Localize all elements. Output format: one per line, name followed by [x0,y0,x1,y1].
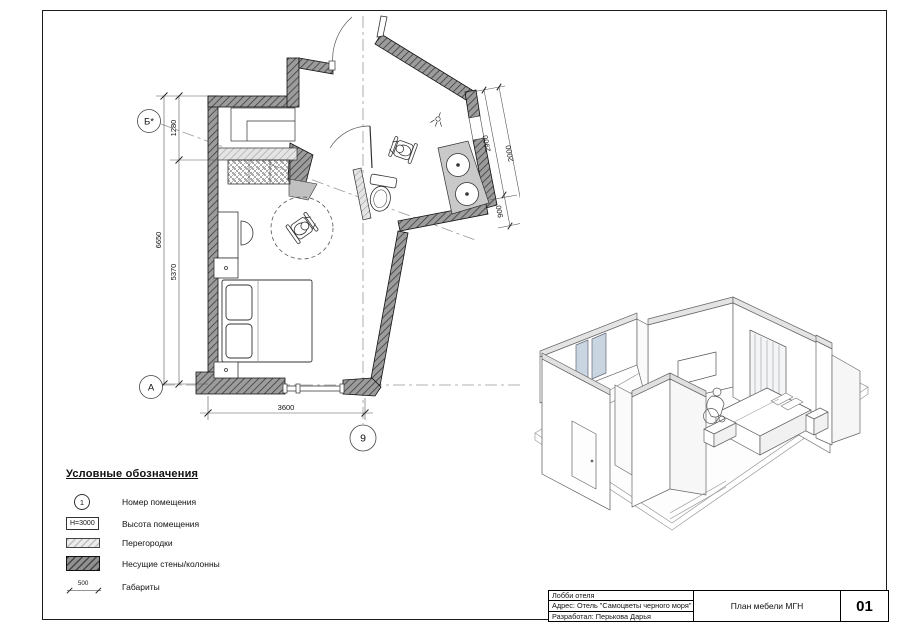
desk [218,212,238,258]
partition-a [632,379,670,507]
bed [222,280,312,362]
wall-niche-stub [287,58,299,107]
project-name: Лобби отеля [549,591,693,600]
grid-bubble-b: Б* [138,110,161,133]
svg-text:9: 9 [360,433,366,445]
svg-text:500: 500 [78,580,89,587]
niche-shelf [231,108,295,141]
legend-item-partitions: Перегородки [66,538,316,548]
partition-b [670,379,706,495]
legend-label: Перегородки [122,538,173,548]
partition-symbol [66,538,100,548]
svg-text:А: А [148,383,155,394]
sink-2 [456,183,479,206]
wardrobe [228,160,290,184]
wall-niche-top [208,96,297,107]
legend-item-room-number: 1 Номер помещения [66,494,316,510]
axonometric-view [520,275,880,540]
sink-1 [447,154,470,177]
partition-toilet [353,168,371,220]
chair [241,221,253,245]
wheelchair-symbol-bath [387,136,417,164]
wheelchair-symbol-room [285,211,319,244]
wall-bath-top [375,34,472,100]
shower-icon [430,110,446,128]
wall-room-right-slanted [370,231,408,386]
room-number-symbol: 1 [74,494,90,510]
wall-entry-left [299,58,333,74]
dim-900: 900 [494,204,505,218]
legend-label: Несущие стены/колонны [122,559,220,569]
bathroom-door [330,126,372,168]
sheet-number: 01 [841,591,888,621]
legend: Условные обозначения 1 Номер помещения H… [66,468,316,603]
wall-left [208,96,218,385]
dim-3600: 3600 [278,403,295,412]
partition-niche-bottom [218,148,297,160]
dim-5370: 5370 [169,264,178,281]
sheet-title: План мебели МГН [694,591,841,621]
title-block: Лобби отеля Адрес: Отель "Самоцветы черн… [548,590,889,622]
wall-vestibule-gray [289,179,317,200]
legend-item-room-height: H=3000 Высота помещения [66,517,316,530]
dim-2900: 2900 [481,134,493,152]
bearing-wall-symbol [66,556,100,571]
bath-glass-door-2 [592,333,606,379]
legend-title: Условные обозначения [66,468,316,480]
dim-1280: 1280 [169,120,178,137]
right-return-wall [832,355,860,443]
grid-bubble-a: А [140,376,163,399]
grid-bubble-9: 9 [350,425,376,451]
drawing-sheet: 6650 1280 5370 3600 [0,0,900,635]
floor-plan: 6650 1280 5370 3600 [40,10,520,460]
project-address: Адрес: Отель "Самоцветы черного моря" [549,600,693,610]
wall-bath-bottom [398,204,488,231]
legend-label: Номер помещения [122,497,196,507]
room-height-symbol: H=3000 [66,517,99,530]
legend-label: Высота помещения [122,519,199,529]
partition-c [615,385,632,475]
title-block-info: Лобби отеля Адрес: Отель "Самоцветы черн… [549,591,694,621]
dimension-symbol: 500 [66,578,102,595]
toilet [365,174,397,213]
legend-item-bearing-walls: Несущие стены/колонны [66,556,316,571]
wall-bottom-left [196,372,285,394]
wall-bath-right-upper [465,90,480,118]
dim-2000: 2000 [504,144,516,162]
svg-text:Б*: Б* [144,117,154,128]
legend-label: Габариты [122,582,160,592]
project-author: Разработал: Перькова Дарья [549,611,693,621]
front-door-handle [591,460,593,462]
legend-item-dimensions: 500 Габариты [66,578,316,595]
dim-6650: 6650 [154,232,163,249]
